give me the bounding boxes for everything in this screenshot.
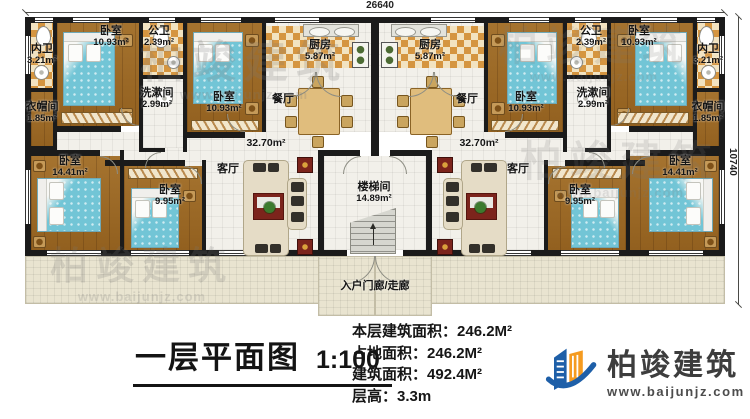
end-table (297, 157, 313, 173)
sofa-cushion (469, 244, 480, 253)
pillow (135, 200, 150, 218)
nightstand (245, 102, 259, 115)
dining-chair (341, 95, 353, 107)
nightstand (554, 190, 567, 202)
wall (318, 150, 360, 156)
bed-mattress (572, 198, 618, 247)
plan-right-unit (375, 10, 725, 320)
wall (693, 88, 725, 92)
sink-bowl (420, 27, 441, 37)
sofa-cushion (291, 182, 304, 192)
kitchen-sink-counter (391, 24, 447, 37)
sink-bowl (395, 27, 416, 37)
window (73, 17, 109, 23)
nightstand (704, 160, 717, 172)
stat-value: 492.4M² (427, 366, 482, 383)
window (509, 17, 549, 23)
wall (650, 150, 725, 156)
dining-chair (312, 136, 324, 148)
sink (167, 56, 180, 69)
brand-block: 柏竣建筑 www.baijunjz.com (545, 345, 745, 404)
sofa-cushion (482, 244, 495, 253)
nightstand (183, 190, 196, 202)
pillow (215, 44, 230, 62)
stat-label: 本层建筑面积： (352, 323, 457, 340)
dining-chair (397, 116, 409, 128)
wall (25, 88, 57, 92)
window (25, 170, 31, 224)
bed (131, 188, 179, 248)
nightstand (491, 102, 505, 115)
pillow (198, 44, 213, 62)
stat-value: 246.2M² (457, 323, 512, 340)
bed-mattress (64, 42, 114, 105)
window (719, 36, 725, 74)
sofa-cushion (268, 163, 279, 172)
brand-text: 柏竣建筑 www.baijunjz.com (607, 351, 745, 399)
wall (139, 17, 143, 152)
washbasin (577, 90, 594, 107)
window (275, 17, 319, 23)
wall (187, 132, 245, 138)
bed-headboard (636, 33, 686, 42)
sofa-cushion (270, 244, 281, 253)
wall (607, 17, 611, 152)
wall (143, 148, 165, 152)
dining-chair (453, 95, 465, 107)
wall (202, 160, 206, 256)
brand-url: www.baijunjz.com (607, 384, 745, 399)
pillow (686, 207, 701, 225)
stat-label: 占地面积： (352, 345, 427, 362)
sink (570, 56, 583, 69)
dining-chair (341, 116, 353, 128)
stat-value: 3.3m (397, 388, 431, 405)
dimension-tick (735, 13, 742, 20)
bed-headboard (38, 179, 47, 231)
nightstand (245, 34, 259, 47)
wardrobe (191, 120, 259, 131)
plant (476, 202, 487, 213)
plan-left-unit (25, 10, 375, 320)
bed-mattress (508, 42, 556, 103)
coffee-table-rug (253, 193, 284, 220)
plant (264, 202, 275, 213)
dining-chair (397, 95, 409, 107)
pillow (49, 182, 64, 200)
nightstand (491, 34, 505, 47)
porch-extension-floor (318, 256, 375, 316)
wall (57, 126, 121, 132)
dining-chair (285, 116, 297, 128)
end-table (437, 239, 453, 255)
nightstand (33, 236, 46, 248)
toilet (581, 27, 597, 48)
sink-bowl (334, 27, 355, 37)
stat-row: 层高：3.3m (352, 386, 512, 408)
window (201, 17, 241, 23)
stat-row: 占地面积：246.2M² (352, 343, 512, 365)
pillow (86, 44, 101, 62)
bed-mattress (47, 179, 100, 231)
coffee-table-rug (466, 193, 497, 220)
window (561, 250, 619, 256)
window (35, 17, 53, 23)
window (575, 17, 601, 23)
stove (352, 42, 369, 68)
stat-label: 层高： (352, 388, 397, 405)
sink-bowl (309, 27, 330, 37)
bed (63, 32, 115, 106)
bed-headboard (132, 189, 178, 198)
wall (120, 150, 124, 256)
dining-chair (453, 116, 465, 128)
dimension-line-right (738, 17, 739, 305)
stats-block: 本层建筑面积：246.2M² 占地面积：246.2M² 建筑面积：492.4M²… (352, 321, 512, 407)
bed (37, 178, 101, 232)
end-table (437, 157, 453, 173)
wall (318, 150, 324, 256)
pillow (600, 200, 615, 218)
porch-extension-floor (375, 256, 432, 316)
wall (25, 150, 100, 156)
bed (649, 178, 713, 232)
pillow (537, 44, 552, 62)
wall (505, 132, 563, 138)
wall (143, 75, 187, 79)
bed-headboard (194, 33, 242, 42)
window (131, 250, 189, 256)
window (697, 17, 715, 23)
wall (375, 17, 379, 156)
pillow (152, 200, 167, 218)
brand-name: 柏竣建筑 (607, 351, 745, 381)
sofa-cushion (484, 163, 497, 172)
bed (571, 188, 619, 248)
bed-mattress (194, 42, 242, 103)
stat-value: 246.2M² (427, 345, 482, 362)
dining-chair (426, 136, 438, 148)
bed-headboard (508, 33, 556, 42)
bed-mattress (132, 198, 178, 247)
wall (629, 126, 693, 132)
window (641, 17, 677, 23)
stat-row: 本层建筑面积：246.2M² (352, 321, 512, 343)
sofa-cushion (471, 163, 482, 172)
window (149, 17, 175, 23)
wall (544, 160, 548, 256)
bed-headboard (64, 33, 114, 42)
wardrobe (491, 120, 559, 131)
sink (34, 65, 49, 80)
window (649, 250, 703, 256)
bed-headboard (703, 179, 712, 231)
window (431, 17, 475, 23)
sofa-cushion (446, 212, 459, 222)
bed-mattress (650, 179, 703, 231)
stove (381, 42, 398, 68)
pillow (667, 44, 682, 62)
window (25, 36, 31, 74)
pillow (686, 182, 701, 200)
wall (262, 17, 266, 132)
sofa-cushion (291, 196, 304, 206)
bed-headboard (572, 189, 618, 198)
dimension-right-value: 10740 (727, 148, 738, 176)
stat-label: 建筑面积： (352, 366, 427, 383)
washbasin (156, 90, 173, 107)
sofa-cushion (291, 212, 304, 222)
pillow (583, 200, 598, 218)
sofa-cushion (446, 182, 459, 192)
cloakroom-floor (31, 92, 53, 150)
bed (193, 32, 243, 104)
toilet (699, 26, 714, 46)
brand-logo-icon (545, 345, 599, 404)
floor-plan-page: 26640 10740 柏竣建筑 www.baijunjz.com 柏竣建筑 w… (0, 0, 750, 419)
wall (563, 75, 607, 79)
bed (507, 32, 557, 104)
stat-row: 建筑面积：492.4M² (352, 364, 512, 386)
pillow (649, 44, 664, 62)
wall (484, 17, 488, 132)
wall (693, 23, 697, 150)
page-title: 一层平面图 (135, 332, 300, 377)
cloakroom-floor (697, 92, 719, 150)
nightstand (33, 160, 46, 172)
nightstand (617, 34, 631, 47)
wall (390, 150, 432, 156)
window (719, 170, 725, 224)
sofa-cushion (253, 163, 266, 172)
sofa-cushion (255, 244, 268, 253)
toilet (36, 26, 51, 46)
wall (426, 150, 432, 256)
nightstand (704, 236, 717, 248)
pillow (520, 44, 535, 62)
bed-mattress (636, 42, 686, 105)
toilet (153, 27, 169, 48)
end-table (297, 239, 313, 255)
pillow (68, 44, 83, 62)
kitchen-sink-counter (303, 24, 359, 37)
wall (626, 150, 630, 256)
dimension-tick (735, 301, 742, 308)
wall (563, 17, 567, 152)
sink (701, 65, 716, 80)
pillow (49, 207, 64, 225)
nightstand (119, 34, 133, 47)
window (47, 250, 101, 256)
bed (635, 32, 687, 106)
sofa-cushion (446, 196, 459, 206)
